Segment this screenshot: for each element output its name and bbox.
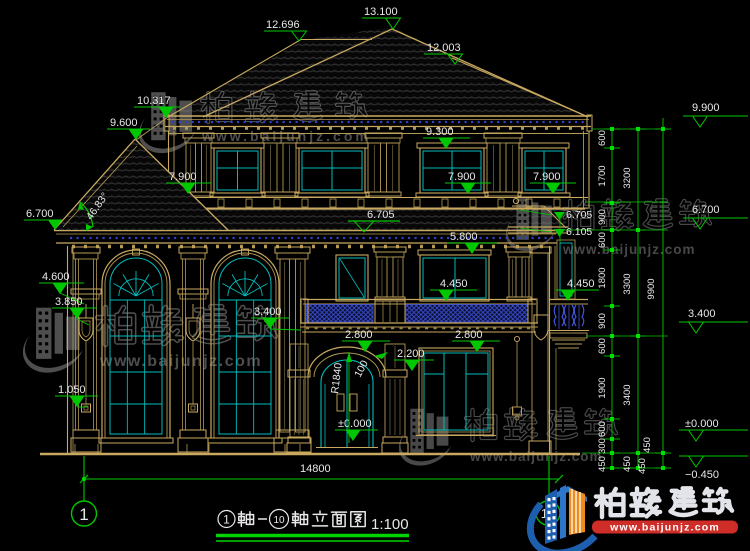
svg-text:−0.450: −0.450 [685,469,719,481]
svg-text:3300: 3300 [622,273,633,294]
svg-text:1:100: 1:100 [371,516,409,533]
svg-text:10: 10 [273,515,285,526]
svg-text:300: 300 [597,438,608,454]
svg-text:450: 450 [642,437,653,453]
svg-text:www.baijunjz.com: www.baijunjz.com [201,128,371,144]
svg-text:3.400: 3.400 [254,306,282,318]
svg-text:www.baijunjz.com: www.baijunjz.com [469,449,603,464]
svg-text:9.900: 9.900 [692,102,720,114]
svg-text:1.050: 1.050 [58,384,86,396]
svg-text:6.705: 6.705 [566,209,592,221]
svg-text:12.696: 12.696 [266,19,300,31]
svg-text:10.317: 10.317 [137,95,171,107]
svg-text:7.900: 7.900 [448,171,476,183]
svg-text:3400: 3400 [622,384,633,405]
svg-text:900: 900 [597,209,608,225]
svg-text:www.baijunjz.com: www.baijunjz.com [562,242,696,257]
svg-text:600: 600 [597,338,608,354]
svg-text:2.200: 2.200 [397,348,425,360]
svg-text:12.003: 12.003 [427,42,461,54]
svg-text:13.100: 13.100 [364,6,398,18]
svg-text:3.850: 3.850 [55,296,83,308]
svg-text:600: 600 [597,421,608,437]
svg-text:±0.000: ±0.000 [685,418,719,430]
svg-text:9.600: 9.600 [110,117,138,129]
svg-text:7.900: 7.900 [533,171,561,183]
svg-text:6.700: 6.700 [692,204,720,216]
svg-text:1800: 1800 [597,267,608,288]
svg-text:4.450: 4.450 [567,278,595,290]
svg-text:4.600: 4.600 [42,271,70,283]
svg-text:5.800: 5.800 [450,231,478,243]
svg-text:6.700: 6.700 [26,208,54,220]
svg-text:7.900: 7.900 [169,171,197,183]
svg-text:2.800: 2.800 [345,329,373,341]
svg-text:1: 1 [79,505,88,524]
svg-text:600: 600 [597,130,608,146]
svg-text:900: 900 [597,313,608,329]
svg-text:600: 600 [597,232,608,248]
svg-text:1700: 1700 [597,165,608,186]
svg-text:±0.000: ±0.000 [338,418,372,430]
svg-text:14800: 14800 [300,463,331,475]
svg-text:6.705: 6.705 [367,209,395,221]
svg-text:6.105: 6.105 [566,226,592,238]
svg-text:1900: 1900 [597,377,608,398]
svg-text:2.800: 2.800 [455,329,483,341]
svg-text:9.300: 9.300 [426,126,454,138]
svg-text:4.450: 4.450 [440,278,468,290]
svg-text:3.400: 3.400 [688,308,716,320]
svg-text:9900: 9900 [646,278,657,299]
svg-text:450: 450 [637,458,648,474]
svg-text:1: 1 [223,513,230,527]
svg-text:3200: 3200 [622,167,633,188]
svg-text:450: 450 [622,456,633,472]
svg-text:450: 450 [597,456,608,472]
svg-text:www.baijunjz.com: www.baijunjz.com [99,353,262,370]
svg-text:www.baijunjz.com: www.baijunjz.com [609,522,720,534]
